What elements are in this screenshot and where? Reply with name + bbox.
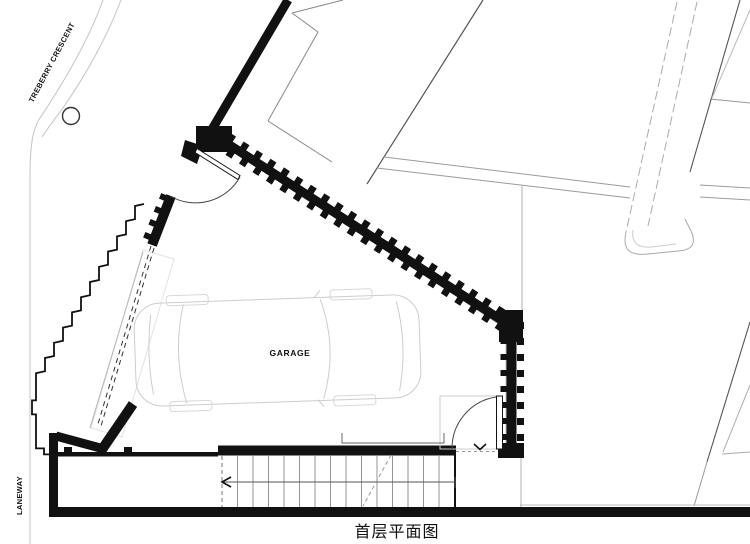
house-edge-dark — [367, 0, 483, 184]
plan-title: 首层平面图 — [354, 523, 439, 541]
neighbour-top-edge-2 — [292, 13, 318, 32]
stair — [222, 433, 455, 508]
garage-door-bump-1 — [64, 447, 72, 452]
car-wheel-fl — [330, 289, 372, 300]
floor-plan-canvas: TREBERRY CRESCENT LANEWAY GARAGE 首层平面图 — [0, 0, 750, 544]
garage-door-bump-2 — [124, 447, 132, 452]
fence-line-1 — [384, 157, 630, 187]
road-edge-inner — [42, 0, 121, 137]
floor-plan-drawing: TREBERRY CRESCENT LANEWAY GARAGE 首层平面图 — [0, 0, 750, 544]
path-strip-right — [648, 2, 697, 226]
street-label: TREBERRY CRESCENT — [27, 21, 77, 104]
path-strip-end — [625, 219, 693, 254]
garage-door-line — [58, 452, 218, 457]
west-stub-top — [152, 196, 171, 245]
car-rear-window — [177, 304, 187, 403]
south-wall — [218, 446, 456, 456]
stair-leader-bracket — [342, 433, 444, 443]
lower-door-recess — [440, 396, 501, 449]
site-context — [30, 0, 750, 544]
parcel-line-3 — [710, 99, 750, 103]
party-wall — [211, 0, 288, 131]
parcel-line-1 — [690, 0, 740, 172]
north-wall-teeth-inner — [207, 139, 504, 330]
laneway-wall — [49, 507, 750, 517]
car-wheel-rl — [166, 294, 208, 305]
fence-line-1r — [700, 185, 750, 188]
west-boundary-wall — [49, 433, 58, 517]
laneway-label: LANEWAY — [15, 476, 24, 515]
neighbour-top-edge-1 — [292, 0, 343, 13]
neighbour-top-edge-4 — [268, 121, 332, 162]
parcel-line-7 — [722, 452, 750, 454]
parcel-line-5 — [694, 462, 707, 506]
site-boundary — [32, 186, 522, 507]
path-strip-end-inner — [633, 230, 676, 247]
lower-door-swing-arc — [452, 397, 496, 449]
lower-door-leaf — [497, 396, 503, 449]
room-label: GARAGE — [270, 348, 311, 358]
upper-door-swing-arc — [170, 177, 240, 203]
parcel-line-2 — [712, 10, 750, 98]
tree-circle — [63, 108, 80, 125]
car-mirror-top — [314, 290, 320, 297]
path-strip-left — [626, 2, 677, 232]
fence-line-2r — [700, 197, 750, 200]
parcel-line-4 — [707, 322, 750, 462]
fence-line-2 — [377, 168, 630, 198]
west-edge-dashed-1 — [101, 248, 154, 426]
garage-walls — [49, 0, 750, 517]
car-windshield — [320, 299, 331, 398]
neighbour-top-edge-3 — [268, 32, 318, 121]
car-hood-line — [396, 302, 404, 391]
west-stub-bottom — [101, 404, 133, 451]
west-leg-wall — [56, 436, 104, 449]
car-tail-line — [148, 314, 154, 394]
